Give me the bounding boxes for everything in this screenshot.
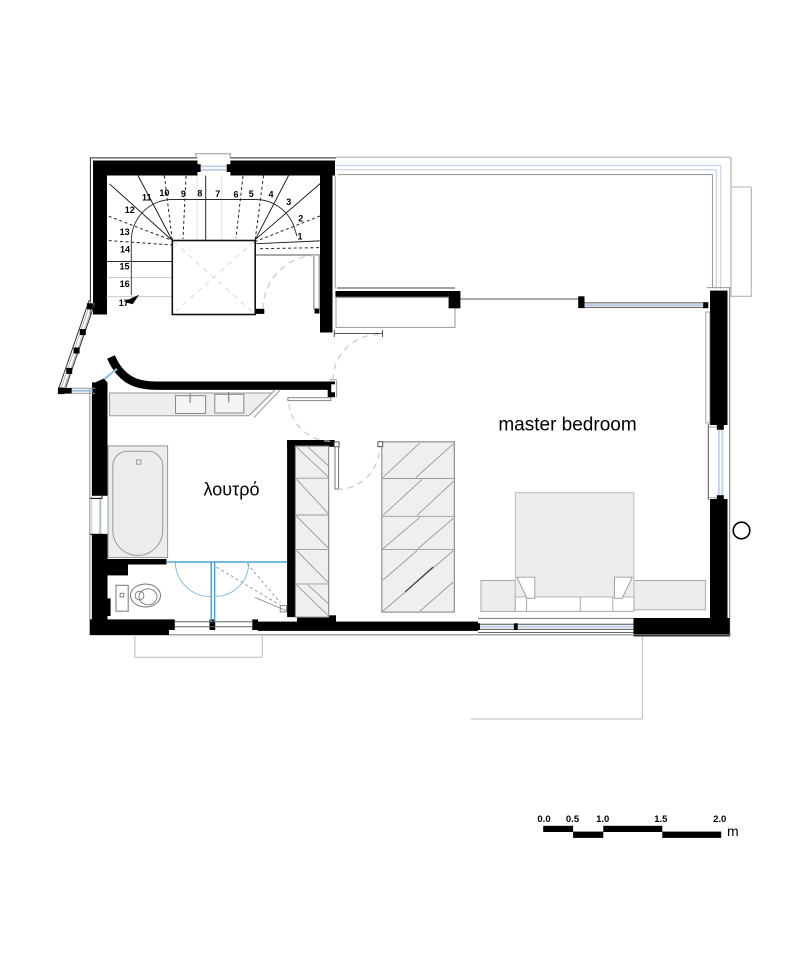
svg-text:6: 6 bbox=[233, 189, 238, 199]
svg-text:17: 17 bbox=[119, 298, 129, 308]
svg-text:15: 15 bbox=[119, 262, 129, 272]
svg-text:master bedroom: master bedroom bbox=[498, 415, 636, 436]
svg-text:0.0: 0.0 bbox=[537, 814, 550, 825]
svg-text:m: m bbox=[727, 823, 739, 839]
svg-text:8: 8 bbox=[197, 189, 202, 199]
svg-text:16: 16 bbox=[120, 279, 130, 289]
svg-text:11: 11 bbox=[142, 193, 152, 203]
svg-text:1: 1 bbox=[297, 232, 302, 242]
svg-text:5: 5 bbox=[249, 189, 254, 199]
svg-text:7: 7 bbox=[215, 189, 220, 199]
svg-text:1.5: 1.5 bbox=[654, 814, 668, 825]
svg-text:9: 9 bbox=[181, 189, 186, 199]
svg-text:0.5: 0.5 bbox=[566, 814, 580, 825]
svg-text:3: 3 bbox=[286, 197, 291, 207]
svg-text:10: 10 bbox=[159, 188, 169, 198]
svg-text:1.0: 1.0 bbox=[596, 814, 609, 825]
svg-text:12: 12 bbox=[125, 205, 135, 215]
svg-text:13: 13 bbox=[120, 227, 130, 237]
svg-text:4: 4 bbox=[268, 190, 273, 200]
svg-text:λουτρό: λουτρό bbox=[204, 480, 260, 500]
svg-text:2: 2 bbox=[298, 214, 303, 224]
svg-text:14: 14 bbox=[120, 245, 130, 255]
svg-text:2.0: 2.0 bbox=[713, 814, 726, 825]
